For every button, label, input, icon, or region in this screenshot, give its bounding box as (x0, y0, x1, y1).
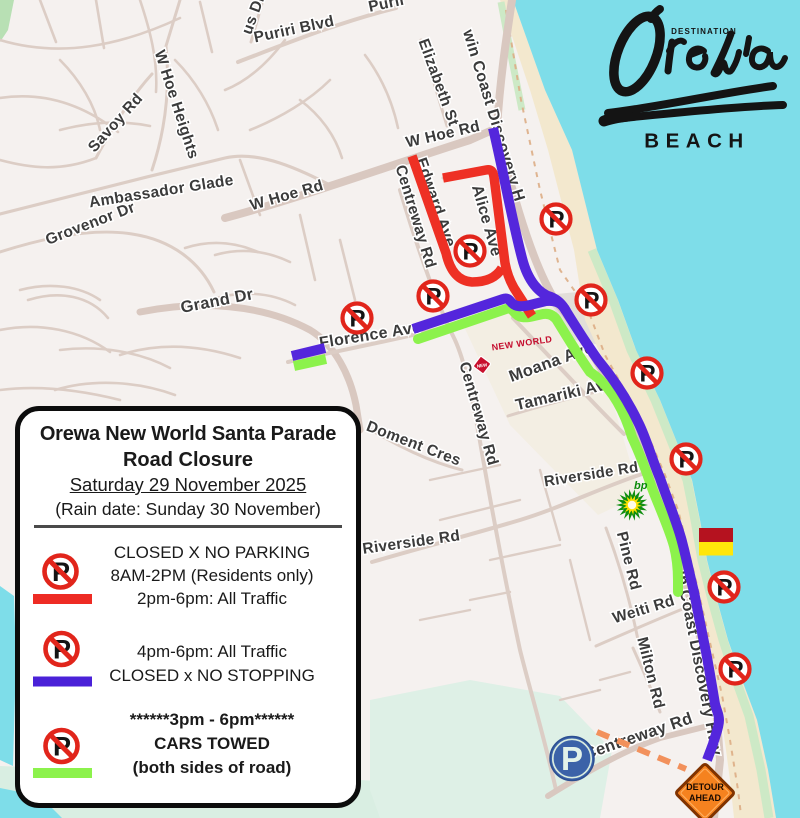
svg-text:BEACH: BEACH (644, 130, 749, 153)
svg-text:P: P (561, 740, 583, 777)
svg-text:bp: bp (634, 480, 648, 492)
svg-text:DETOUR: DETOUR (686, 782, 724, 792)
svg-text:DESTINATION: DESTINATION (671, 27, 737, 36)
svg-text:AHEAD: AHEAD (689, 793, 722, 803)
